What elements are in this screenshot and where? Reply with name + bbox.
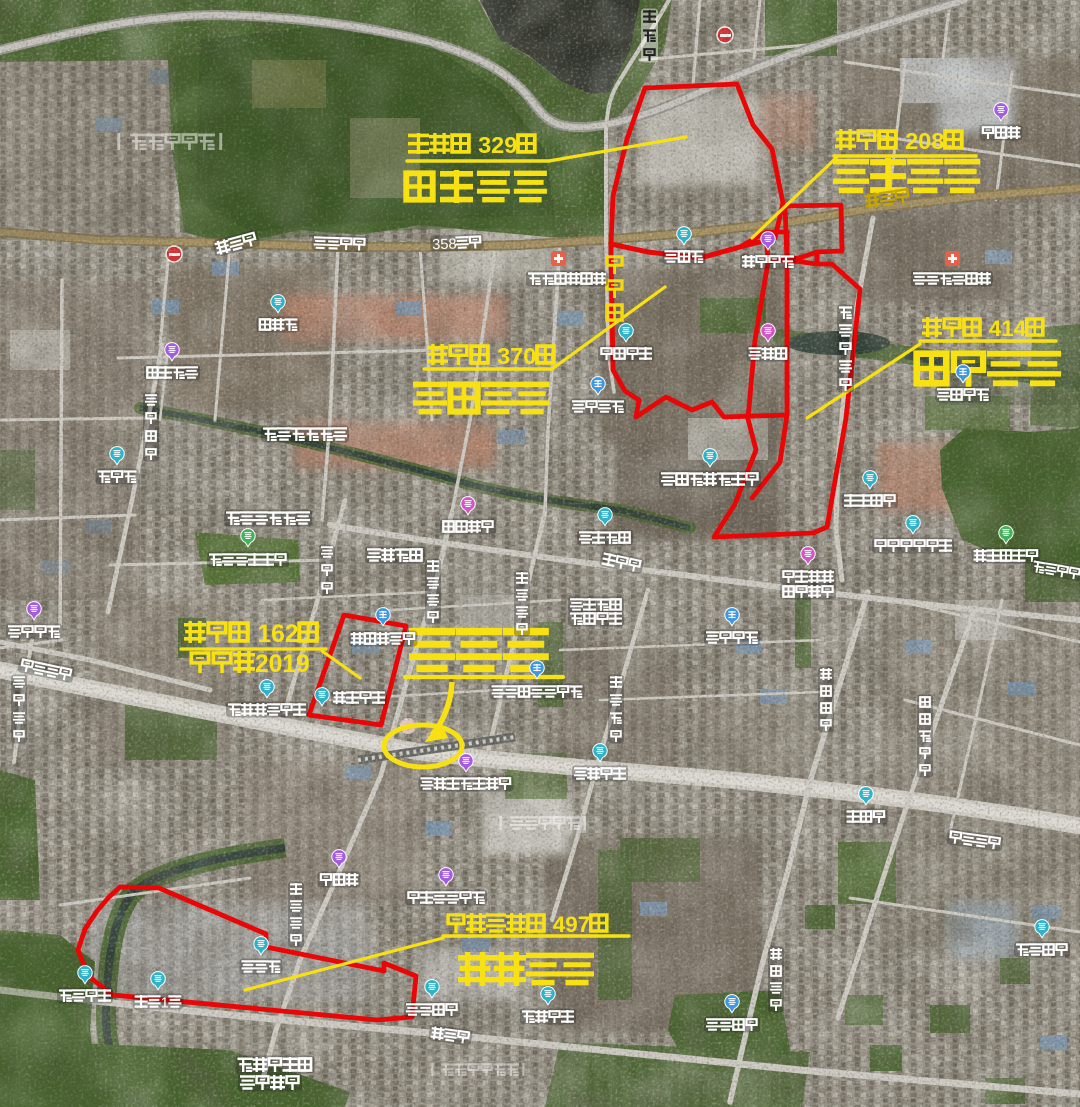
- svg-text:358: 358: [432, 236, 457, 253]
- svg-text:370: 370: [497, 343, 536, 369]
- svg-text:1: 1: [161, 995, 169, 1011]
- svg-text:329: 329: [478, 132, 517, 158]
- svg-text:208: 208: [905, 128, 944, 154]
- svg-text:414: 414: [989, 316, 1027, 341]
- svg-text:162: 162: [258, 621, 299, 648]
- svg-text:497: 497: [553, 912, 590, 937]
- svg-text:2019: 2019: [255, 651, 310, 678]
